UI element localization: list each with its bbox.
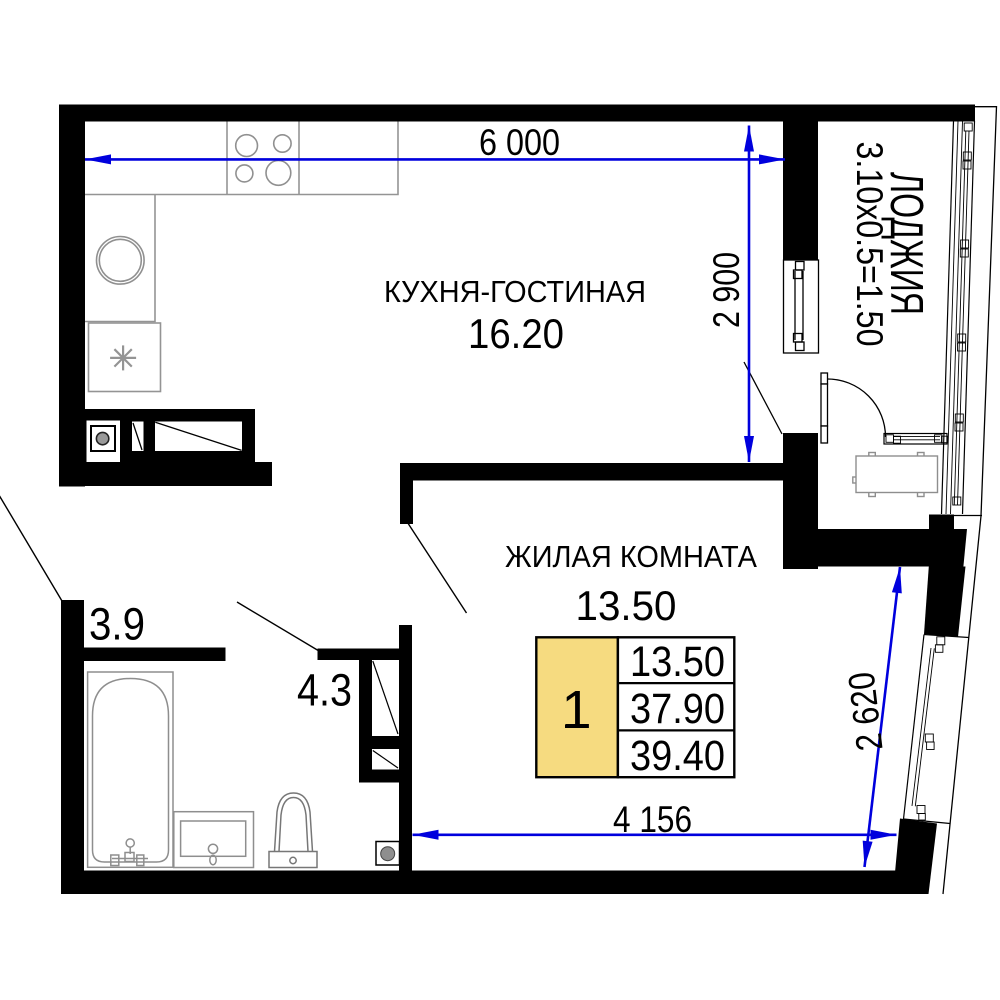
- svg-text:ЖИЛАЯ КОМНАТА: ЖИЛАЯ КОМНАТА: [505, 540, 758, 574]
- svg-text:1: 1: [561, 680, 591, 740]
- svg-text:37.90: 37.90: [630, 685, 725, 733]
- svg-text:4.3: 4.3: [297, 665, 352, 716]
- svg-text:3.9: 3.9: [89, 599, 145, 650]
- svg-text:16.20: 16.20: [468, 310, 564, 357]
- svg-text:13.50: 13.50: [630, 638, 725, 686]
- svg-text:КУХНЯ-ГОСТИНАЯ: КУХНЯ-ГОСТИНАЯ: [384, 275, 646, 309]
- svg-text:3.10x0.5=1.50: 3.10x0.5=1.50: [849, 142, 890, 347]
- svg-text:4 156: 4 156: [613, 799, 692, 840]
- svg-text:13.50: 13.50: [576, 582, 677, 629]
- svg-text:2 900: 2 900: [706, 252, 747, 328]
- svg-text:39.40: 39.40: [630, 732, 725, 780]
- svg-text:6 000: 6 000: [479, 122, 560, 163]
